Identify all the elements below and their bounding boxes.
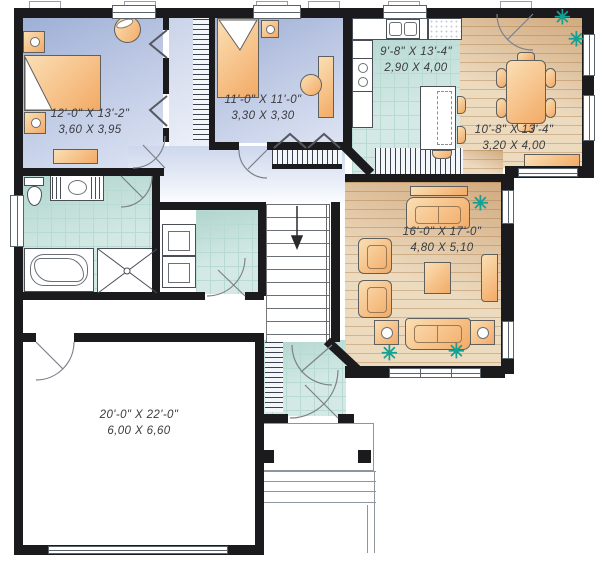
walkway-edge: [367, 505, 368, 553]
window: [583, 95, 595, 141]
laundry-wall: [152, 202, 262, 210]
living-room-metric: 4,80 X 5,10: [403, 240, 482, 256]
stove-icon: [352, 58, 373, 92]
dining-table-end: [517, 52, 535, 61]
dining-chair-icon: [496, 68, 507, 88]
master-bath-wall: [14, 168, 164, 176]
armchair-icon: [358, 238, 392, 274]
tv-cabinet-icon: [481, 254, 498, 302]
nightstand-icon: [261, 20, 279, 38]
porch-step: [256, 471, 376, 472]
coffee-table-icon: [424, 262, 451, 294]
bedroom-2-label: 11'-0" X 11'-0" 3,30 X 3,30: [225, 92, 302, 124]
garage-door: [48, 546, 228, 554]
refrigerator-icon: [428, 18, 462, 40]
garage-imperial: 20'-0" X 22'-0": [100, 407, 179, 423]
closet-wall: [163, 58, 169, 94]
kitchen-imperial: 9'-8" X 13'-4": [380, 44, 452, 60]
floor-plan: ✳ ✳ ✳ ✳ ✳ 12'-0" X 13'-2" 3,60 X 3,95 11…: [0, 0, 600, 573]
plant-icon: ✳: [381, 344, 398, 364]
porch-step: [256, 502, 376, 503]
garage-floor: [23, 342, 255, 545]
dining-chair-icon: [545, 98, 556, 118]
closet-wall: [163, 8, 169, 30]
porch-step: [256, 491, 376, 492]
kitchen-wall: [343, 8, 352, 148]
exterior-wall: [14, 8, 594, 18]
plant-icon: ✳: [568, 30, 585, 50]
master-bedroom-metric: 3,60 X 3,95: [51, 122, 130, 138]
shower-icon: [97, 248, 158, 294]
porch-column: [358, 450, 371, 463]
living-wall: [345, 174, 505, 182]
window: [112, 5, 156, 19]
garage-label: 20'-0" X 22'-0" 6,00 X 6,60: [100, 407, 179, 439]
end-table-icon: [470, 320, 495, 345]
window: [253, 5, 301, 19]
plant-icon: ✳: [472, 194, 489, 214]
closet-wall: [272, 164, 342, 169]
bedroom-2-imperial: 11'-0" X 11'-0": [225, 92, 302, 108]
kitchen-metric: 2,90 X 4,00: [380, 60, 452, 76]
laundry-floor: [196, 210, 262, 294]
washer-icon: [162, 224, 196, 256]
dining-room-label: 10'-8" X 13'-4" 3,20 X 4,00: [475, 122, 554, 154]
exterior-wall: [14, 8, 23, 555]
bedroom-2-metric: 3,30 X 3,30: [225, 108, 302, 124]
staircase: [266, 204, 330, 342]
bathroom-vanity-icon: [50, 175, 104, 201]
stool-icon: [432, 150, 452, 159]
toilet-icon: [24, 177, 44, 186]
window: [518, 168, 578, 177]
garage-metric: 6,00 X 6,60: [100, 423, 179, 439]
closet-wall: [209, 8, 215, 142]
garage-wall: [14, 333, 36, 342]
living-room-label: 16'-0" X 17'-0" 4,80 X 5,10: [403, 224, 482, 256]
plant-icon: ✳: [554, 8, 571, 28]
bathroom-wall: [14, 292, 205, 300]
triple-window: [389, 368, 481, 378]
stool-icon: [457, 96, 466, 114]
nightstand-icon: [24, 112, 46, 134]
bedroom-closet-rod: [193, 14, 209, 140]
dining-chair-icon: [545, 68, 556, 88]
stairs-wall: [331, 202, 340, 342]
console-table-icon: [410, 186, 468, 196]
entry-closet-rod: [265, 342, 283, 412]
window: [10, 195, 24, 247]
stairs-wall: [258, 202, 266, 296]
plant-icon: ✳: [448, 342, 465, 362]
window: [502, 190, 514, 224]
entry-wall: [338, 414, 354, 423]
dining-room-metric: 3,20 X 4,00: [475, 138, 554, 154]
desk-chair-icon: [300, 74, 322, 96]
bed-icon: [217, 18, 259, 98]
bed-icon: [24, 55, 101, 111]
bedroom2-wall: [209, 142, 239, 150]
porch-step: [256, 481, 376, 482]
walkway-edge: [374, 471, 375, 553]
bathroom-wall: [152, 176, 160, 294]
bedroom2-wall: [267, 142, 345, 150]
window: [502, 321, 514, 359]
entry-wall: [255, 414, 288, 423]
dryer-icon: [162, 256, 196, 288]
window: [383, 5, 427, 19]
kitchen-sink-icon: [386, 19, 420, 39]
nightstand-icon: [23, 31, 45, 53]
porch: [258, 423, 374, 471]
dining-room-imperial: 10'-8" X 13'-4": [475, 122, 554, 138]
kitchen-label: 9'-8" X 13'-4" 2,90 X 4,00: [380, 44, 452, 76]
kitchen-island: [420, 86, 456, 150]
dining-table-icon: [506, 60, 546, 124]
exterior-wall: [255, 333, 264, 555]
bedroom2-closet-rod: [272, 150, 342, 164]
dresser-icon: [53, 149, 98, 164]
stool-icon: [457, 126, 466, 144]
garage-wall: [74, 333, 264, 342]
armchair-icon: [358, 280, 392, 318]
living-room-imperial: 16'-0" X 17'-0": [403, 224, 482, 240]
dining-chair-icon: [496, 98, 507, 118]
master-bedroom-imperial: 12'-0" X 13'-2": [51, 106, 130, 122]
end-table-icon: [374, 320, 399, 345]
master-bedroom-label: 12'-0" X 13'-2" 3,60 X 3,95: [51, 106, 130, 138]
bathtub-icon: [24, 248, 94, 292]
closet-wall: [163, 128, 169, 142]
